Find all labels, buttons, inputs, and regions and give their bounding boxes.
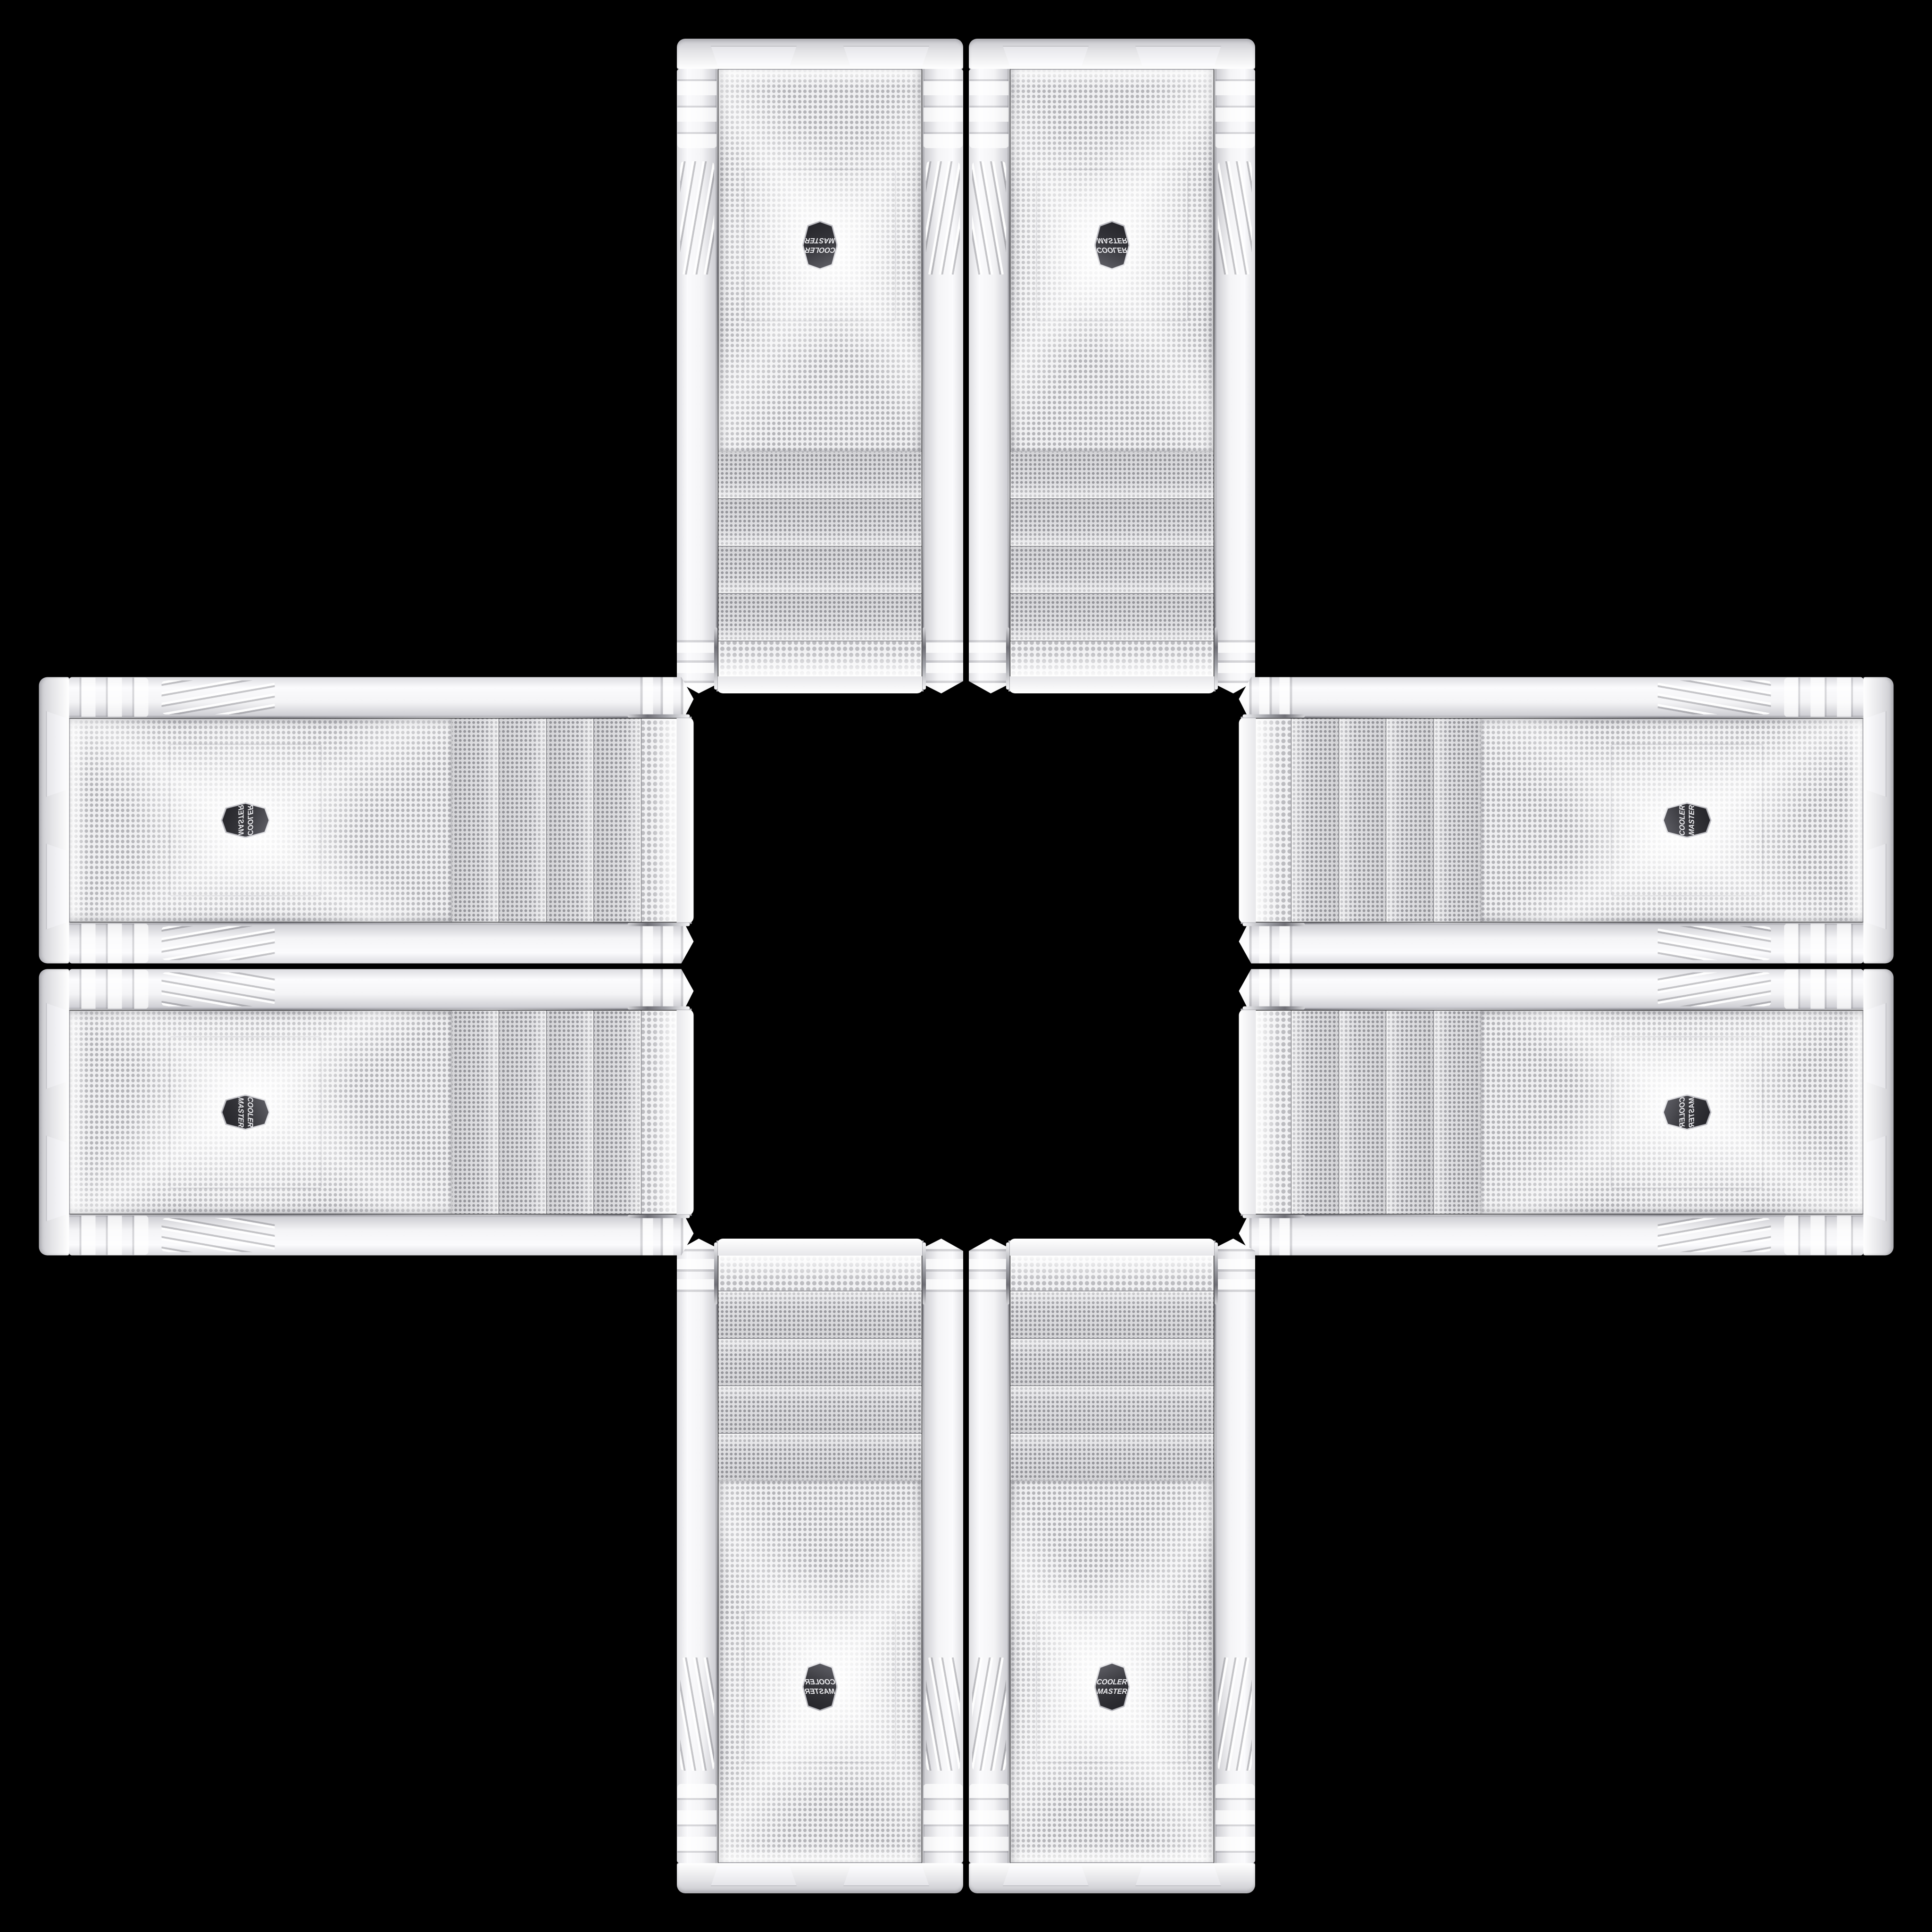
chrome-trim-right bbox=[714, 1242, 717, 1305]
chrome-trim-right bbox=[627, 1215, 690, 1218]
grip-ribs bbox=[161, 926, 275, 960]
grip-ribs bbox=[680, 161, 714, 275]
chrome-trim-right bbox=[1215, 627, 1218, 690]
base-bumper bbox=[1003, 46, 1089, 66]
logo-text-master: MASTER bbox=[805, 236, 835, 245]
grip-ribs bbox=[1657, 926, 1771, 960]
chrome-trim-left bbox=[627, 1006, 690, 1009]
mesh-cap bbox=[641, 1010, 676, 1214]
mesh-cap bbox=[1256, 1010, 1291, 1214]
fan-mesh-panel: COOLER MASTER bbox=[718, 1480, 922, 1863]
base-panel bbox=[39, 677, 69, 963]
drive-bay-stack bbox=[1291, 1010, 1480, 1214]
chrome-trim-left bbox=[1006, 1242, 1009, 1305]
rail-foot-steps bbox=[1784, 923, 1863, 963]
drive-bay-cover bbox=[594, 718, 642, 922]
logo-text-master: MASTER bbox=[1097, 236, 1127, 245]
top-rim bbox=[1008, 676, 1216, 693]
frame-rail-right bbox=[1215, 1239, 1255, 1863]
base-bumper bbox=[46, 1135, 66, 1221]
rail-tip-chevrons bbox=[923, 1239, 963, 1299]
drive-bay-cover bbox=[1338, 718, 1386, 922]
fan-mesh-panel: COOLER MASTER bbox=[1480, 1010, 1863, 1214]
drive-bay-cover bbox=[718, 500, 922, 547]
drive-bay-stack bbox=[452, 718, 641, 922]
base-bumper bbox=[711, 1866, 797, 1886]
base-bumper bbox=[1135, 1866, 1221, 1886]
drive-bay-cover bbox=[452, 718, 500, 922]
fan-mesh-panel: COOLER MASTER bbox=[718, 69, 922, 452]
drive-bay-stack bbox=[1010, 1291, 1214, 1480]
drive-bay-cover bbox=[718, 594, 922, 642]
fan-mesh-panel: COOLER MASTER bbox=[1010, 69, 1214, 452]
logo-text-master: MASTER bbox=[1097, 1687, 1127, 1696]
rail-foot-steps bbox=[923, 1784, 963, 1863]
rail-tip-chevrons bbox=[969, 633, 1009, 693]
logo-text-cooler: COOLER bbox=[1678, 1097, 1687, 1128]
frame-rail-left bbox=[69, 923, 693, 963]
mesh-cap bbox=[1010, 1256, 1214, 1291]
chrome-trim-right bbox=[1242, 1215, 1305, 1218]
rail-foot-steps bbox=[1784, 969, 1863, 1009]
drive-bay-cover bbox=[1433, 718, 1481, 922]
logo-text-cooler: COOLER bbox=[246, 805, 255, 836]
top-rim bbox=[1008, 1239, 1216, 1256]
panel-seam-right bbox=[1241, 716, 1863, 718]
base-panel bbox=[39, 969, 69, 1255]
base-bumper bbox=[46, 1003, 66, 1089]
panel-seam-right bbox=[69, 1214, 691, 1216]
rail-tip-chevrons bbox=[923, 633, 963, 693]
grip-ribs bbox=[1657, 680, 1771, 714]
rail-tip-chevrons bbox=[969, 1239, 1009, 1299]
case-left-top: COOLER MASTER bbox=[39, 677, 693, 963]
drive-bay-cover bbox=[1291, 1010, 1338, 1214]
cooler-master-logo-icon: COOLER MASTER bbox=[802, 1662, 838, 1711]
rail-tip-chevrons bbox=[633, 923, 693, 963]
chrome-trim-left bbox=[1242, 923, 1305, 926]
drive-bay-cover bbox=[1010, 452, 1214, 500]
logo-text-cooler: COOLER bbox=[246, 1097, 255, 1128]
top-rim bbox=[716, 1239, 924, 1256]
panel-seam-left bbox=[1241, 922, 1863, 924]
drive-bay-cover bbox=[1010, 500, 1214, 547]
grip-ribs bbox=[1218, 161, 1252, 275]
base-bumper bbox=[1003, 1866, 1089, 1886]
panel-seam-left bbox=[1008, 1241, 1010, 1863]
rail-foot-steps bbox=[923, 69, 963, 148]
chrome-trim-right bbox=[1242, 714, 1305, 717]
logo-text-cooler: COOLER bbox=[1678, 805, 1687, 836]
drive-bay-cover bbox=[1010, 1291, 1214, 1338]
cooler-master-logo-icon: COOLER MASTER bbox=[1662, 1094, 1711, 1130]
drive-bay-cover bbox=[718, 1291, 922, 1338]
rail-foot-steps bbox=[677, 1784, 717, 1863]
frame-rail-right bbox=[1239, 1215, 1863, 1255]
base-bumper bbox=[711, 46, 797, 66]
logo-text-cooler: COOLER bbox=[805, 246, 836, 255]
drive-bay-stack bbox=[718, 452, 922, 641]
base-panel bbox=[677, 1863, 963, 1893]
top-rim bbox=[1239, 1008, 1256, 1216]
cooler-master-logo-icon: COOLER MASTER bbox=[1094, 1662, 1130, 1711]
rail-tip-chevrons bbox=[1239, 923, 1299, 963]
logo-badge-face bbox=[804, 1664, 837, 1710]
chrome-trim-left bbox=[1006, 627, 1009, 690]
frame-rail-right bbox=[677, 1239, 717, 1863]
cooler-master-logo-icon: COOLER MASTER bbox=[1094, 221, 1130, 270]
drive-bay-cover bbox=[500, 718, 547, 922]
frame-rail-right bbox=[1215, 69, 1255, 693]
mesh-cap bbox=[1256, 718, 1291, 922]
logo-text-cooler: COOLER bbox=[1097, 246, 1128, 255]
rail-foot-steps bbox=[969, 1784, 1009, 1863]
panel-seam-left bbox=[922, 69, 924, 691]
rail-tip-chevrons bbox=[1239, 677, 1299, 717]
logo-badge-face bbox=[1096, 1664, 1129, 1710]
panel-seam-left bbox=[1241, 1008, 1863, 1010]
cooler-master-logo-icon: COOLER MASTER bbox=[1662, 802, 1711, 838]
chrome-trim-left bbox=[923, 627, 926, 690]
rail-foot-steps bbox=[677, 69, 717, 148]
base-bumper bbox=[46, 711, 66, 797]
logo-text-cooler: COOLER bbox=[1097, 1678, 1128, 1687]
rail-tip-chevrons bbox=[633, 1215, 693, 1255]
chrome-trim-right bbox=[1215, 1242, 1218, 1305]
grip-ribs bbox=[1657, 972, 1771, 1006]
top-rim bbox=[1239, 716, 1256, 924]
panel-seam-right bbox=[69, 716, 691, 718]
rail-foot-steps bbox=[1215, 69, 1255, 148]
chrome-trim-left bbox=[627, 923, 690, 926]
rail-tip-chevrons bbox=[633, 677, 693, 717]
drive-bay-cover bbox=[718, 547, 922, 594]
grip-ribs bbox=[926, 1657, 960, 1771]
base-bumper bbox=[1135, 46, 1221, 66]
frame-rail-left bbox=[969, 69, 1009, 693]
frame-rail-right bbox=[1239, 677, 1863, 717]
base-panel bbox=[969, 1863, 1255, 1893]
fan-mesh-panel: COOLER MASTER bbox=[1010, 1480, 1214, 1863]
rail-foot-steps bbox=[969, 69, 1009, 148]
drive-bay-cover bbox=[452, 1010, 500, 1214]
drive-bay-cover bbox=[1338, 1010, 1386, 1214]
top-rim bbox=[676, 1008, 693, 1216]
base-bumper bbox=[1866, 1135, 1886, 1221]
drive-bay-cover bbox=[718, 1385, 922, 1433]
logo-text-cooler: COOLER bbox=[805, 1678, 836, 1687]
rail-foot-steps bbox=[1784, 677, 1863, 717]
fan-mesh-panel: COOLER MASTER bbox=[69, 1010, 452, 1214]
rail-tip-chevrons bbox=[1215, 1239, 1255, 1299]
frame-rail-right bbox=[69, 1215, 693, 1255]
frame-rail-left bbox=[1239, 969, 1863, 1009]
mesh-cap bbox=[641, 718, 676, 922]
base-panel bbox=[677, 39, 963, 69]
panel-seam-right bbox=[1214, 1241, 1216, 1863]
panel-seam-right bbox=[716, 1241, 718, 1863]
scene: COOLER MASTER bbox=[0, 0, 1932, 1932]
logo-text-master: MASTER bbox=[1687, 1097, 1696, 1127]
frame-rail-right bbox=[677, 69, 717, 693]
drive-bay-cover bbox=[1010, 594, 1214, 642]
frame-rail-left bbox=[923, 69, 963, 693]
case-bottom-right: COOLER MASTER bbox=[969, 1239, 1255, 1893]
case-top-left: COOLER MASTER bbox=[677, 39, 963, 693]
rail-foot-steps bbox=[69, 1215, 148, 1255]
mesh-cap bbox=[718, 1256, 922, 1291]
grip-ribs bbox=[680, 1657, 714, 1771]
case-right-bottom: COOLER MASTER bbox=[1239, 969, 1893, 1255]
mesh-cap bbox=[1010, 641, 1214, 676]
drive-bay-cover bbox=[594, 1010, 642, 1214]
logo-text-master: MASTER bbox=[236, 1097, 245, 1127]
rail-foot-steps bbox=[1215, 1784, 1255, 1863]
cooler-master-logo-icon: COOLER MASTER bbox=[802, 221, 838, 270]
rail-foot-steps bbox=[69, 923, 148, 963]
drive-bay-cover bbox=[1010, 547, 1214, 594]
base-bumper bbox=[1866, 1003, 1886, 1089]
mesh-cap bbox=[718, 641, 922, 676]
base-panel bbox=[1863, 969, 1893, 1255]
base-panel bbox=[1863, 677, 1893, 963]
drive-bay-cover bbox=[1010, 1385, 1214, 1433]
rail-tip-chevrons bbox=[633, 969, 693, 1009]
rail-tip-chevrons bbox=[1239, 969, 1299, 1009]
chrome-trim-right bbox=[714, 627, 717, 690]
rail-foot-steps bbox=[69, 969, 148, 1009]
drive-bay-cover bbox=[718, 1433, 922, 1481]
chrome-trim-left bbox=[923, 1242, 926, 1305]
top-rim bbox=[716, 676, 924, 693]
chrome-trim-left bbox=[1242, 1006, 1305, 1009]
cooler-master-logo-icon: COOLER MASTER bbox=[221, 1094, 270, 1130]
logo-text-master: MASTER bbox=[805, 1687, 835, 1696]
grip-ribs bbox=[972, 1657, 1006, 1771]
grip-ribs bbox=[972, 161, 1006, 275]
case-top-right: COOLER MASTER bbox=[969, 39, 1255, 693]
grip-ribs bbox=[1218, 1657, 1252, 1771]
panel-seam-left bbox=[69, 1008, 691, 1010]
case-left-bottom: COOLER MASTER bbox=[39, 969, 693, 1255]
drive-bay-cover bbox=[1385, 1010, 1433, 1214]
grip-ribs bbox=[161, 1218, 275, 1252]
top-rim bbox=[676, 716, 693, 924]
base-panel bbox=[969, 39, 1255, 69]
panel-seam-left bbox=[69, 922, 691, 924]
grip-ribs bbox=[926, 161, 960, 275]
drive-bay-stack bbox=[1291, 718, 1480, 922]
base-bumper bbox=[1866, 843, 1886, 929]
drive-bay-stack bbox=[1010, 452, 1214, 641]
fan-mesh-panel: COOLER MASTER bbox=[1480, 718, 1863, 922]
frame-rail-left bbox=[923, 1239, 963, 1863]
drive-bay-cover bbox=[1433, 1010, 1481, 1214]
case-bottom-left: COOLER MASTER bbox=[677, 1239, 963, 1893]
base-bumper bbox=[1866, 711, 1886, 797]
rail-foot-steps bbox=[69, 677, 148, 717]
rail-foot-steps bbox=[1784, 1215, 1863, 1255]
drive-bay-cover bbox=[547, 1010, 594, 1214]
frame-rail-left bbox=[969, 1239, 1009, 1863]
drive-bay-stack bbox=[718, 1291, 922, 1480]
grip-ribs bbox=[1657, 1218, 1771, 1252]
frame-rail-right bbox=[69, 677, 693, 717]
logo-text-master: MASTER bbox=[236, 805, 245, 835]
chrome-trim-right bbox=[627, 714, 690, 717]
drive-bay-cover bbox=[718, 1338, 922, 1386]
drive-bay-stack bbox=[452, 1010, 641, 1214]
drive-bay-cover bbox=[1010, 1433, 1214, 1481]
panel-seam-right bbox=[1214, 69, 1216, 691]
drive-bay-cover bbox=[547, 718, 594, 922]
cooler-master-logo-icon: COOLER MASTER bbox=[221, 802, 270, 838]
base-bumper bbox=[843, 1866, 929, 1886]
logo-text-master: MASTER bbox=[1687, 805, 1696, 835]
base-bumper bbox=[843, 46, 929, 66]
grip-ribs bbox=[161, 680, 275, 714]
base-bumper bbox=[46, 843, 66, 929]
case-right-top: COOLER MASTER bbox=[1239, 677, 1893, 963]
drive-bay-cover bbox=[1385, 718, 1433, 922]
panel-seam-right bbox=[716, 69, 718, 691]
grip-ribs bbox=[161, 972, 275, 1006]
panel-seam-right bbox=[1241, 1214, 1863, 1216]
frame-rail-left bbox=[1239, 923, 1863, 963]
drive-bay-cover bbox=[1291, 718, 1338, 922]
drive-bay-cover bbox=[718, 452, 922, 500]
panel-seam-left bbox=[1008, 69, 1010, 691]
panel-seam-left bbox=[922, 1241, 924, 1863]
drive-bay-cover bbox=[1010, 1338, 1214, 1386]
fan-mesh-panel: COOLER MASTER bbox=[69, 718, 452, 922]
frame-rail-left bbox=[69, 969, 693, 1009]
drive-bay-cover bbox=[500, 1010, 547, 1214]
